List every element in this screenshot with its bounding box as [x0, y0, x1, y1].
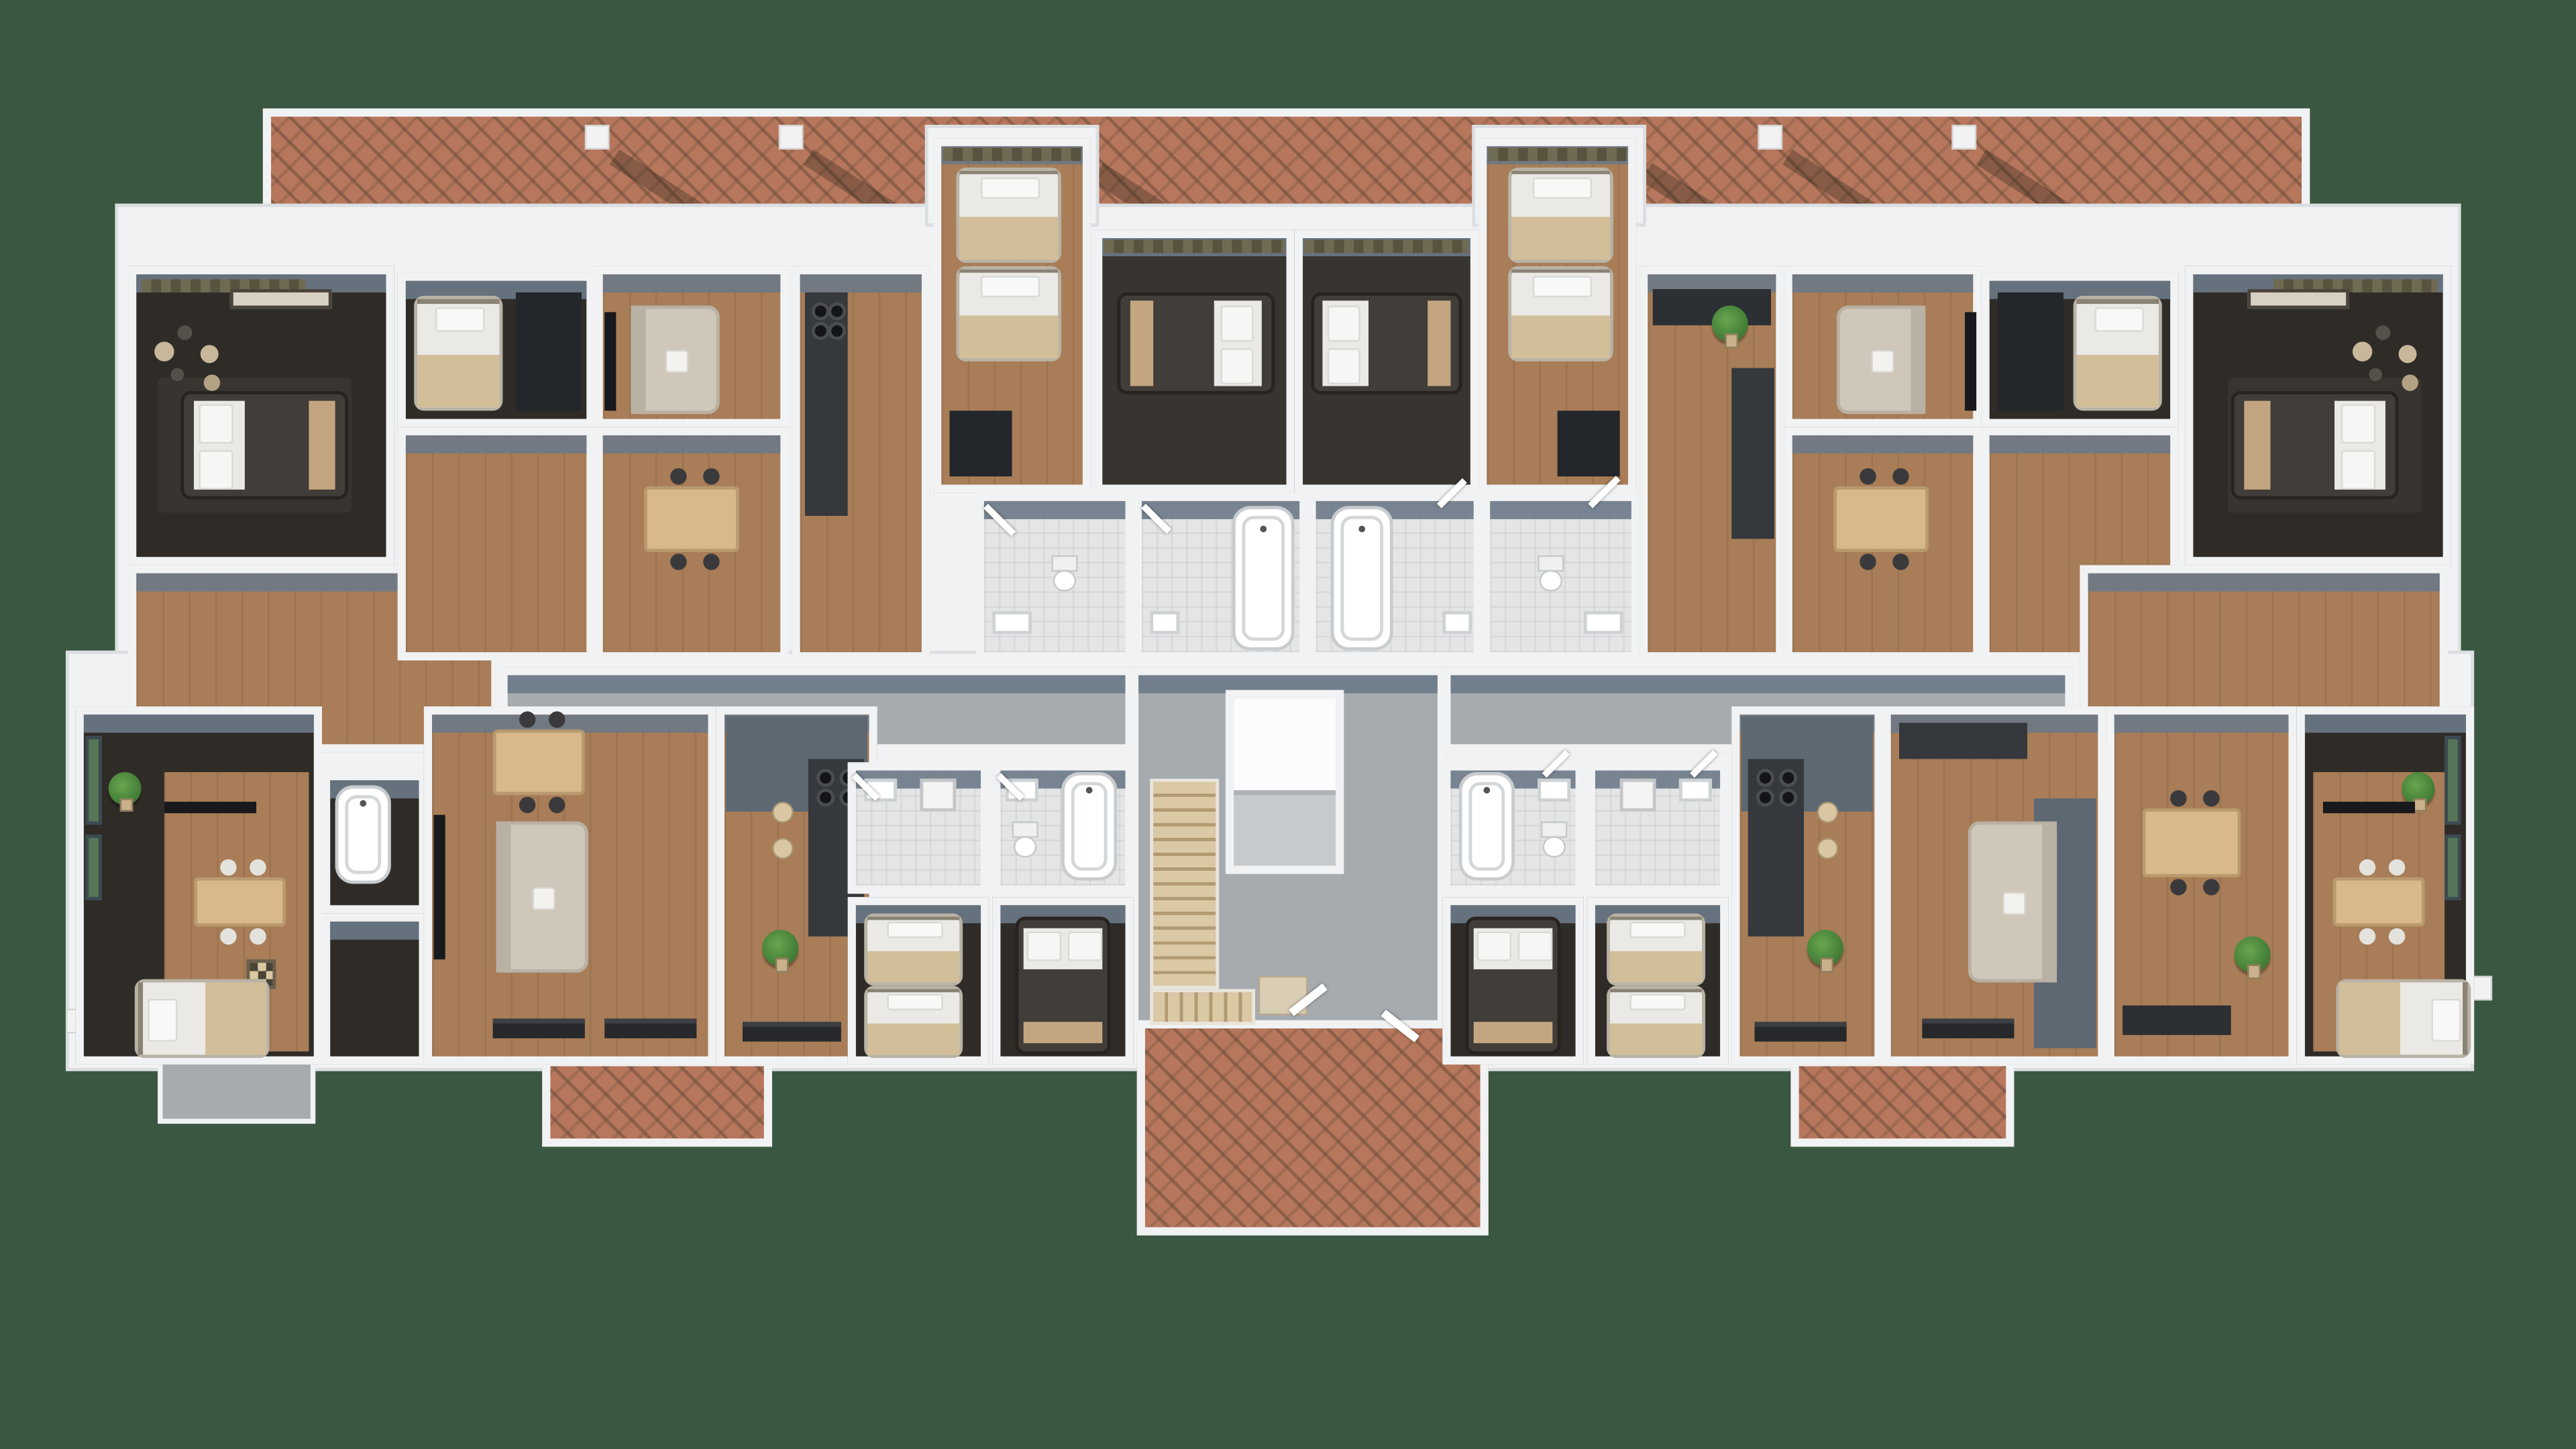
bedpart [1517, 932, 1552, 961]
bowl [1053, 570, 1075, 591]
dining-n3-table [644, 486, 739, 552]
wing-se-bed [2339, 982, 2467, 1055]
bedroom-n2-bed [417, 299, 499, 408]
bedpart [1478, 932, 1512, 961]
bowl [1543, 837, 1565, 857]
bedpart [309, 400, 335, 490]
bath-3-sink [1442, 611, 1472, 634]
pot [2414, 798, 2427, 811]
chair [2203, 790, 2219, 806]
bedpart [1220, 305, 1254, 342]
pot [120, 798, 133, 811]
bedroom-n11-wardrobe [1998, 292, 2063, 411]
twin-n8-bed-b [1511, 270, 1610, 358]
sofa-pillow [665, 350, 688, 373]
wing-sw-window-a [85, 736, 101, 824]
bedpart [959, 217, 1058, 259]
kitchen-se-plant [1807, 930, 1843, 966]
chair [2170, 790, 2186, 806]
living-n10-tv [1965, 312, 1976, 411]
sofa-back [631, 306, 645, 415]
chair [2359, 859, 2375, 875]
wing-se-window-a [2445, 736, 2461, 824]
kitchen-n9-counter [1731, 368, 1774, 539]
tubin [345, 795, 381, 874]
stovedot [831, 306, 843, 317]
kitchen-se-stool-a [1817, 802, 1839, 823]
bedpart [1511, 217, 1610, 259]
living-sw-radiator-b [604, 1018, 696, 1038]
bedroom-n2-wardrobe [516, 292, 582, 411]
kitchen-sw-stool-a [772, 802, 794, 823]
bath-e-b-sink [1538, 779, 1570, 802]
twin-n5-curtain [943, 148, 1081, 161]
pot [1820, 958, 1834, 972]
dot [177, 325, 192, 340]
chair [219, 928, 235, 945]
wing-se-window-b [2445, 835, 2461, 900]
dot [2369, 368, 2382, 382]
bath-3-tub [1334, 509, 1390, 647]
living-se-sofa [1968, 821, 2057, 982]
face [603, 274, 780, 292]
bunkroom-e-bed-a [1610, 917, 1702, 983]
pot [775, 958, 789, 972]
kitchen-n9-plant [1712, 306, 1748, 342]
bath-e-b-toilet [1541, 821, 1567, 857]
bath-e-a-washer [1620, 779, 1656, 812]
bedpart [2463, 982, 2468, 1055]
bath-2-tub [1236, 509, 1291, 647]
dining-se-table [2142, 808, 2241, 877]
bedpart [1511, 315, 1610, 358]
bedpart [2094, 308, 2143, 333]
bedpart [1610, 1023, 1702, 1055]
bedpart [1024, 1022, 1102, 1043]
dot [2402, 374, 2418, 390]
tubin [1468, 782, 1505, 871]
tubin [1340, 516, 1383, 641]
bedpart [981, 276, 1039, 297]
tank [1051, 555, 1077, 572]
stovedot [820, 772, 832, 784]
bedpart [205, 982, 266, 1055]
stairs-turn [1150, 989, 1255, 1025]
stovedot [1782, 792, 1794, 803]
stovedot [1782, 772, 1794, 784]
bath-4-sink [1584, 611, 1623, 634]
chair [519, 797, 535, 813]
living-sw-table [493, 729, 585, 795]
elevator-shaft [1226, 690, 1344, 874]
balcony-brick-right [1790, 1058, 2014, 1146]
twin-n5-bed-b [959, 270, 1058, 358]
bedpart [2339, 982, 2401, 1055]
bedpart [1511, 171, 1610, 174]
sofa-pillow [1871, 350, 1894, 373]
pot [1725, 334, 1739, 348]
bedpart [867, 951, 959, 982]
terrace-post-2 [779, 125, 804, 150]
twin-n5-bed-a [959, 171, 1058, 260]
terrace-post-3 [1758, 125, 1782, 150]
pot [2247, 965, 2261, 979]
bedpart [1067, 932, 1102, 961]
stairs-run [1150, 779, 1219, 989]
tank [1012, 821, 1038, 838]
bowl [1014, 837, 1036, 857]
bedpart [2341, 450, 2376, 489]
bedpart [199, 405, 234, 443]
bath-2-sink [1150, 611, 1179, 634]
wing-sw-desk [194, 877, 286, 926]
chair [702, 468, 718, 484]
face [1490, 501, 1631, 519]
kitchen-se-counter [1748, 759, 1804, 936]
balcony-brick-left [542, 1058, 772, 1146]
elev-top [1234, 698, 1336, 796]
bowl [1540, 570, 1562, 591]
bedpart [1610, 917, 1702, 920]
wing-se-plant [2402, 772, 2434, 805]
living-sw-radiator-a [493, 1018, 585, 1038]
sofa-pillow [532, 887, 555, 910]
bedpart [2432, 998, 2461, 1042]
face [330, 922, 419, 940]
face [603, 435, 780, 453]
bath-w-b-toilet [1012, 821, 1038, 857]
bedpart [1610, 951, 1702, 982]
bedpart [959, 315, 1058, 358]
chair [2170, 879, 2186, 895]
chair [219, 859, 235, 875]
bedpart [1610, 989, 1702, 991]
bunkroom-w-bed-a [867, 917, 959, 983]
stovedot [814, 306, 826, 317]
bedpart [1533, 178, 1591, 199]
bedpart [417, 356, 499, 408]
bedpart [1630, 922, 1685, 938]
bath-e-a-sink [1679, 779, 1712, 802]
bedroom-ne-wall-dots [2353, 325, 2425, 398]
bedroom-nw-bed [184, 394, 345, 496]
bedpart [959, 171, 1058, 174]
face [1450, 676, 2065, 694]
bedroom-nw-wall-dots [154, 325, 227, 398]
bunkroom-e-bed-b [1610, 989, 1702, 1055]
living-sw-tv [434, 815, 445, 960]
bedroom-e-plaza-bed [1468, 920, 1557, 1051]
bedpart [867, 917, 959, 920]
hall-n2 [398, 427, 595, 661]
face [1990, 435, 2170, 453]
bath-1-sink [992, 611, 1032, 634]
tubin [1071, 782, 1108, 871]
bedpart [1130, 301, 1154, 385]
twin-n8-curtain [1489, 148, 1627, 161]
stovedot [831, 325, 843, 337]
sofa-pillow [2002, 892, 2025, 915]
face [984, 501, 1126, 519]
living-se-radiator [1922, 1018, 2014, 1038]
tank [1538, 555, 1564, 572]
wing-sw-bed [138, 982, 266, 1055]
bedpart [148, 998, 177, 1042]
chair [702, 553, 718, 570]
wing-se-tv [2323, 802, 2415, 813]
chair [519, 711, 535, 727]
bedroom-n6-bed [1120, 296, 1271, 391]
bedroom-ne-frame [2247, 289, 2349, 309]
chair [2359, 928, 2375, 945]
face [2114, 714, 2289, 733]
bedpart [1220, 348, 1254, 385]
face [2088, 574, 2440, 592]
drain [360, 800, 366, 806]
dot [2353, 341, 2372, 361]
bedpart [435, 308, 484, 333]
bedpart [867, 1023, 959, 1055]
bedpart [2341, 405, 2376, 443]
wing-sw-plant [109, 772, 142, 805]
floor-plan-stage [0, 0, 2576, 1449]
bedpart [1511, 270, 1610, 273]
stovedot [1760, 792, 1772, 803]
bedroom-ne-bed [2235, 394, 2396, 496]
kitchen-n4-counter [805, 292, 848, 516]
bedroom-n11-bed [2077, 299, 2159, 408]
face [800, 274, 922, 292]
bath-e-b-tub [1462, 775, 1511, 877]
bedpart [1028, 932, 1062, 961]
bedroom-nw-frame [230, 289, 332, 309]
entrance-plaza [1137, 1015, 1489, 1235]
kitchen-se-stool-b [1817, 838, 1839, 859]
bedpart [888, 994, 943, 1010]
dining-n10-table [1833, 486, 1929, 552]
sofa-back [1911, 306, 1925, 415]
bedpart [138, 982, 144, 1055]
bath-w-b-tub [1065, 775, 1114, 877]
twin-n8-bed-a [1511, 171, 1610, 260]
face [1792, 274, 1973, 292]
stovedot [820, 792, 832, 803]
twin-n5-closet [950, 411, 1012, 476]
living-n3-tv [604, 312, 616, 411]
tank [1541, 821, 1567, 838]
face [1792, 435, 1973, 453]
kitchen-sw-radiator [743, 1022, 841, 1041]
sofa-back [2042, 821, 2057, 982]
bunkroom-w-bed-b [867, 989, 959, 1055]
bedpart [1427, 301, 1450, 385]
wing-sw-window-b [85, 835, 101, 900]
bedpart [867, 989, 959, 991]
bedpart [888, 922, 943, 938]
tubin [1242, 516, 1285, 641]
terrace-post-1 [585, 125, 610, 150]
bedroom-n7-curtain [1304, 240, 1468, 254]
balcony-gray-left [158, 1055, 315, 1124]
terrace-post-4 [1951, 125, 1976, 150]
wing-se-desk [2333, 877, 2425, 926]
living-se-counter [1899, 723, 2027, 759]
stovedot [1760, 772, 1772, 784]
face [2305, 714, 2466, 733]
kitchen-se-radiator [1755, 1022, 1847, 1041]
sofa-back [496, 821, 511, 972]
bedpart [1630, 994, 1685, 1010]
bedpart [1533, 276, 1591, 297]
bedpart [1328, 348, 1360, 385]
kitchen-sw-stool-b [772, 838, 794, 859]
chair [1892, 553, 1908, 570]
bedpart [2244, 400, 2269, 490]
dot [154, 341, 174, 361]
bedpart [1328, 305, 1360, 342]
dot [201, 345, 219, 363]
bath-4-toilet [1538, 555, 1564, 592]
chair [2203, 879, 2219, 895]
face [84, 714, 314, 733]
dot [204, 374, 220, 390]
face [508, 676, 1126, 694]
cell-sw-closet [322, 914, 427, 1065]
cell-sw-tub [338, 789, 387, 881]
bedroom-w-plaza-bed [1018, 920, 1107, 1051]
bedroom-n7-bed [1314, 296, 1459, 391]
bedpart [1474, 1022, 1552, 1043]
twin-n8-closet [1558, 411, 1620, 476]
dot [171, 368, 184, 382]
living-sw-sofa [496, 821, 588, 972]
dining-se-plant [2235, 936, 2271, 973]
bath-1-toilet [1051, 555, 1077, 592]
dot [2399, 345, 2417, 363]
bedpart [2077, 356, 2159, 408]
bath-w-a-washer [920, 779, 956, 812]
dining-se-sideboard [2123, 1006, 2231, 1035]
bedpart [2077, 299, 2159, 303]
kitchen-sw-plant [762, 930, 798, 966]
bedpart [981, 178, 1039, 199]
living-n10-armchair [1837, 306, 1925, 415]
wing-sw-tv [164, 802, 256, 813]
dot [2375, 325, 2390, 340]
face [406, 435, 586, 453]
bedpart [199, 450, 234, 489]
bedpart [959, 270, 1058, 273]
living-n3-armchair [631, 306, 719, 415]
chair [1892, 468, 1908, 484]
bedpart [417, 299, 499, 303]
bedroom-n6-curtain [1104, 240, 1285, 254]
stovedot [814, 325, 826, 337]
